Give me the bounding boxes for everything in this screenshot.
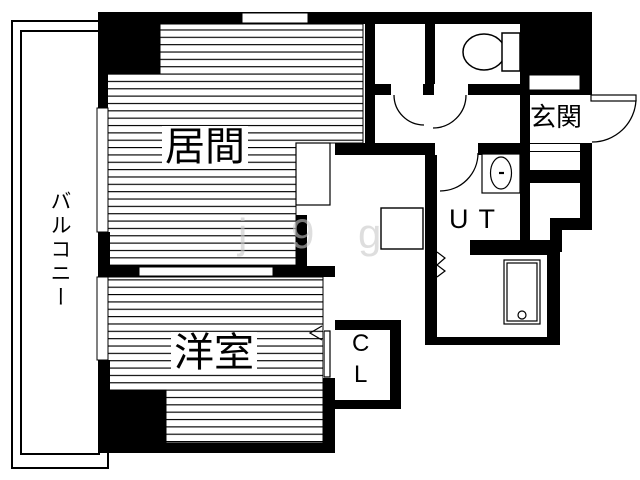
sliding-partition-opening [139,267,273,276]
watermark: j 9 g [238,212,397,256]
top-window [242,13,308,23]
bathtub-icon [504,260,540,324]
washbasin-icon [482,154,520,193]
bath-folding-door-icon [437,252,445,277]
room-label-bedroom: 洋室 [171,332,257,374]
room-label-entrance: 玄関 [530,104,582,131]
kitchen-counter [296,143,330,205]
room-label-balcony: バルコニー [48,190,70,310]
closet-door-leaf [324,331,330,377]
room-label-closet: CL [348,330,373,392]
entrance-door-leaf [591,95,636,101]
toilet-icon [463,33,520,71]
room-label-utility: UT [449,205,505,233]
room-label-living: 居間 [162,126,248,168]
hall-door-arc-2 [433,95,466,128]
floor-plan: j 9 g 居間 洋室 バルコニー 玄関 UT CL [0,0,640,480]
balcony-window-living [97,108,108,232]
entrance-door-arc [592,100,636,142]
utility-door-arc [440,153,478,191]
entrance-step-lines [530,144,580,152]
shoe-cabinet [529,75,580,90]
hall-door-arc-1 [394,95,424,125]
balcony-window-bedroom [97,277,108,360]
